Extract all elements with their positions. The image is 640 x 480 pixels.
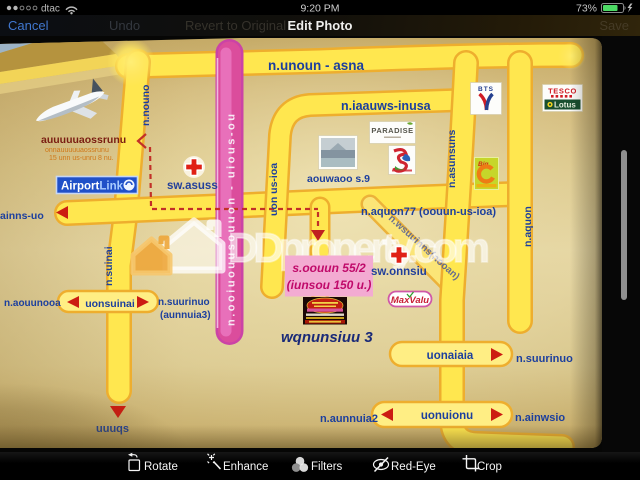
- svg-text:73%: 73%: [576, 3, 597, 15]
- svg-text:Filters: Filters: [311, 461, 343, 473]
- svg-text:(aunnuia3): (aunnuia3): [160, 310, 211, 321]
- svg-text:n.aouunooa: n.aouunooa: [4, 298, 61, 309]
- svg-text:sw.onnsiu: sw.onnsiu: [371, 266, 427, 278]
- svg-text:n.asunsuns: n.asunsuns: [446, 129, 458, 188]
- svg-text:n.aunnuia2: n.aunnuia2: [320, 413, 378, 425]
- svg-text:uonaiaia: uonaiaia: [427, 350, 474, 362]
- svg-text:onnauuuuuaossrunu: onnauuuuuaossrunu: [45, 147, 109, 154]
- svg-text:Enhance: Enhance: [223, 461, 268, 473]
- svg-text:sw.asuss: sw.asuss: [167, 180, 218, 192]
- svg-text:s.oouun 55/2: s.oouun 55/2: [292, 261, 366, 275]
- svg-text:uonsuinai: uonsuinai: [85, 298, 135, 310]
- svg-text:dtac: dtac: [41, 4, 60, 15]
- svg-text:n.suurinuo: n.suurinuo: [516, 353, 573, 365]
- svg-text:ainns-uo: ainns-uo: [0, 210, 44, 222]
- svg-text:PARADISE: PARADISE: [371, 126, 413, 135]
- svg-text:n.suinai: n.suinai: [103, 246, 115, 286]
- svg-text:15 unn us-unru 8 nu.: 15 unn us-unru 8 nu.: [49, 155, 114, 162]
- svg-text:uon us-ioa: uon us-ioa: [268, 163, 280, 216]
- svg-text:n.suurinuo: n.suurinuo: [158, 297, 210, 308]
- svg-text:uonuionu: uonuionu: [421, 410, 473, 422]
- svg-text:n.nouno: n.nouno: [140, 85, 152, 126]
- svg-text:n.aquon77 (oouun-us-ioa): n.aquon77 (oouun-us-ioa): [361, 206, 496, 218]
- svg-text:n.ainwsio: n.ainwsio: [515, 412, 565, 424]
- svg-text:BTS: BTS: [478, 86, 494, 93]
- svg-text:9:20 PM: 9:20 PM: [300, 3, 339, 15]
- svg-text:aouwaoo s.9: aouwaoo s.9: [307, 173, 370, 185]
- svg-text:Crop: Crop: [477, 461, 502, 473]
- svg-text:n.unoun - asna: n.unoun - asna: [268, 58, 364, 73]
- svg-text:n.aquon: n.aquon: [522, 206, 534, 247]
- svg-text:Rotate: Rotate: [144, 461, 178, 473]
- svg-text:(iunsou 150 u.): (iunsou 150 u.): [287, 278, 372, 292]
- svg-text:n.iaauws-inusa: n.iaauws-inusa: [341, 99, 432, 113]
- svg-text:AirportLink: AirportLink: [61, 181, 124, 193]
- svg-text:wqnunsiuu 3: wqnunsiuu 3: [281, 329, 373, 346]
- svg-text:Red-Eye: Red-Eye: [391, 461, 436, 473]
- svg-text:auuuuuaossrunu: auuuuuaossrunu: [41, 134, 126, 146]
